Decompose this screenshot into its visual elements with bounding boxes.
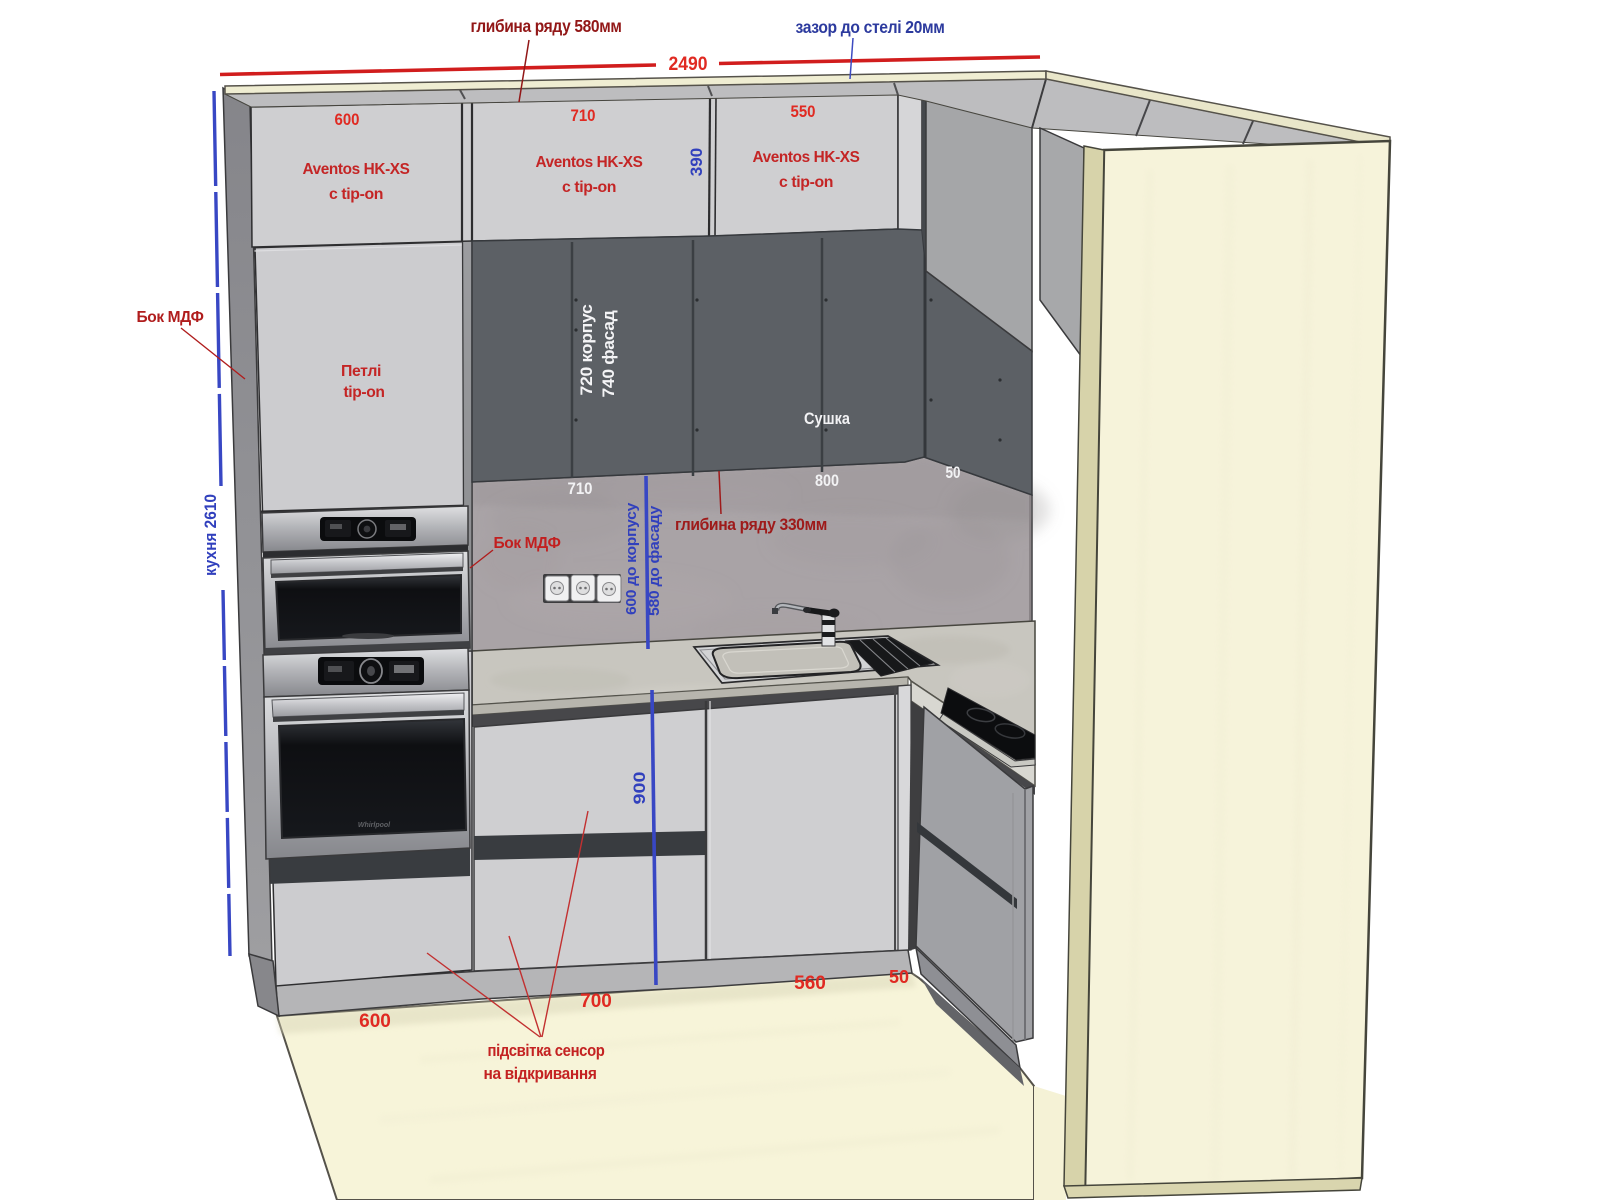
svg-text:800: 800: [815, 471, 839, 490]
svg-text:Whirlpool: Whirlpool: [358, 822, 391, 829]
svg-text:2490: 2490: [669, 54, 708, 75]
svg-text:глибина ряду 330мм: глибина ряду 330мм: [675, 516, 827, 534]
svg-text:720 корпус: 720 корпус: [578, 304, 596, 395]
svg-text:с tip-on: с tip-on: [562, 179, 616, 196]
svg-text:кухня 2610: кухня 2610: [202, 494, 220, 576]
svg-text:Сушка: Сушка: [804, 410, 851, 428]
svg-text:50: 50: [889, 967, 909, 987]
svg-text:Бок МДФ: Бок МДФ: [137, 309, 205, 326]
svg-text:600: 600: [359, 1011, 391, 1032]
svg-text:Aventos HK-XS: Aventos HK-XS: [536, 154, 644, 171]
svg-text:600: 600: [335, 110, 360, 129]
svg-text:Aventos HK-XS: Aventos HK-XS: [753, 149, 861, 166]
svg-text:зазор до стелі 20мм: зазор до стелі 20мм: [796, 17, 945, 37]
svg-text:580 до фасаду: 580 до фасаду: [646, 505, 663, 616]
svg-text:Петлі: Петлі: [341, 363, 381, 380]
svg-text:глибина ряду 580мм: глибина ряду 580мм: [471, 16, 622, 36]
svg-text:50: 50: [946, 464, 961, 482]
svg-text:710: 710: [568, 479, 593, 498]
svg-text:с tip-on: с tip-on: [329, 186, 383, 203]
svg-text:на відкривання: на відкривання: [484, 1065, 597, 1083]
svg-text:550: 550: [791, 102, 816, 121]
svg-text:підсвітка сенсор: підсвітка сенсор: [488, 1042, 605, 1060]
svg-text:tip-on: tip-on: [344, 384, 385, 401]
svg-text:Бок МДФ: Бок МДФ: [494, 535, 562, 552]
svg-text:740 фасад: 740 фасад: [600, 310, 618, 398]
svg-text:390: 390: [687, 148, 706, 176]
svg-text:Aventos HK-XS: Aventos HK-XS: [303, 161, 411, 178]
svg-text:710: 710: [571, 106, 596, 125]
svg-text:600 до корпусу: 600 до корпусу: [623, 502, 640, 615]
svg-text:700: 700: [580, 991, 612, 1012]
svg-text:с tip-on: с tip-on: [779, 174, 833, 191]
svg-text:560: 560: [794, 973, 826, 994]
svg-text:900: 900: [630, 772, 649, 805]
